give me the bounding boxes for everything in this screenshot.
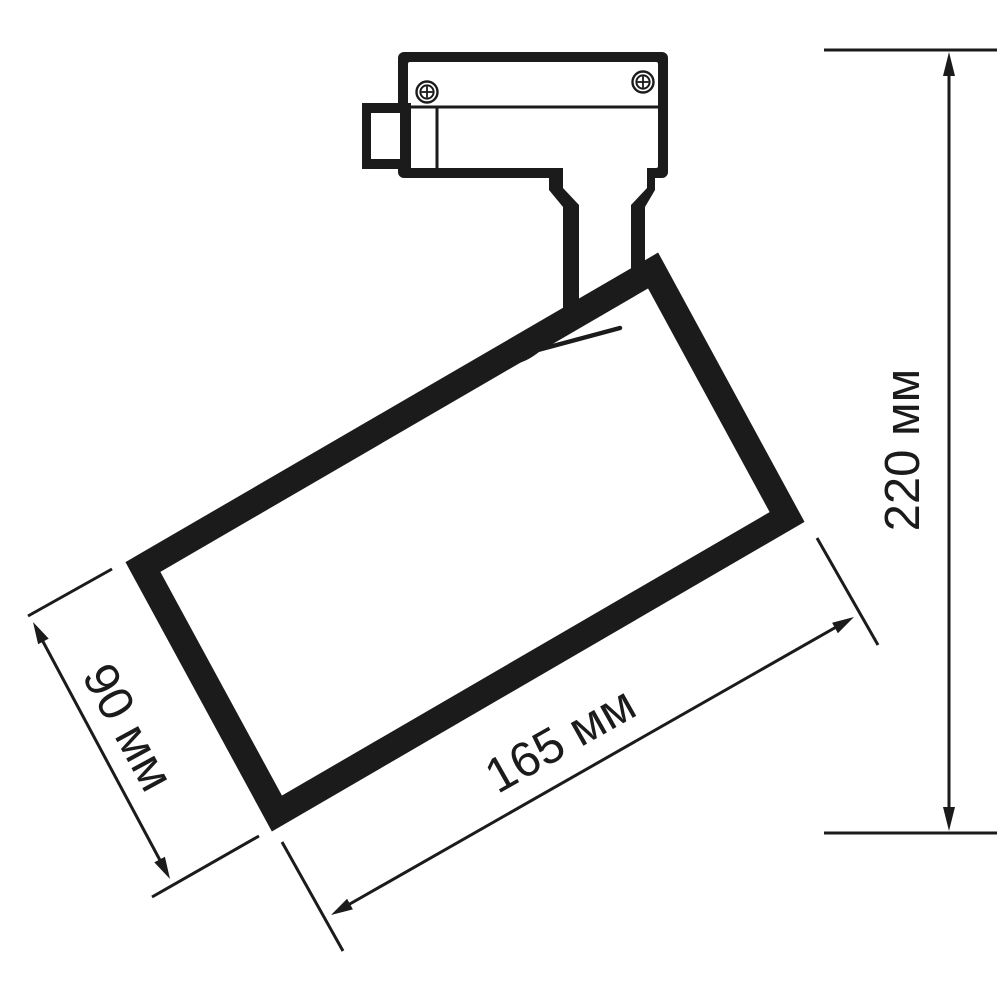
arrow-up-icon (943, 52, 955, 76)
arrow-down-right-icon (154, 857, 170, 879)
dimension-height: 220 мм (824, 50, 997, 833)
length-extension-line-right (817, 538, 878, 645)
track-adapter-face (408, 62, 658, 168)
phillips-screw-icon (417, 82, 438, 103)
length-extension-line-left (282, 842, 343, 951)
height-dimension-label: 220 мм (876, 369, 930, 532)
arrow-left-icon (331, 899, 353, 915)
arrow-up-left-icon (33, 622, 49, 644)
arrow-right-icon (832, 617, 854, 633)
lamp-head-body (143, 271, 787, 814)
arrow-down-icon (943, 807, 955, 831)
dimension-drawing-canvas: 220 мм 165 мм 90 мм (0, 0, 1000, 1000)
adapter-connector-face (371, 113, 400, 159)
lamp-head (143, 268, 787, 814)
diameter-extension-line-top (28, 569, 112, 616)
diameter-extension-line-bottom (152, 836, 259, 897)
track-adapter (362, 52, 668, 178)
phillips-screw-icon (633, 72, 654, 93)
spotlight-drawing: 220 мм 165 мм 90 мм (0, 0, 1000, 1000)
